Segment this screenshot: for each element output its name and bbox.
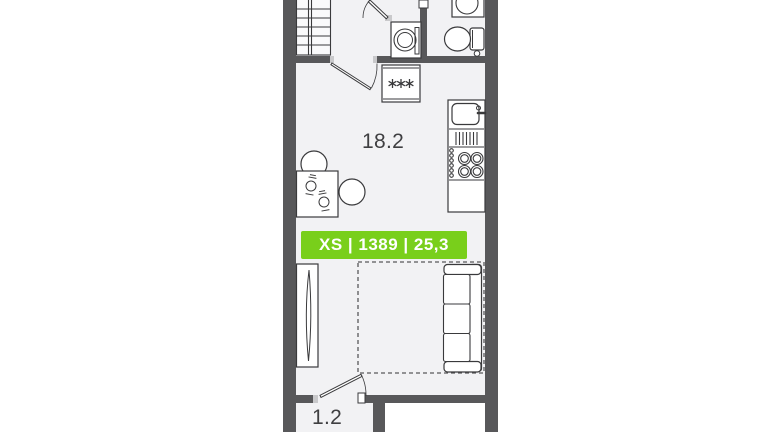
room-area-label: 18.2 [362, 130, 404, 154]
closet-icon [297, 264, 319, 367]
sofa-icon [444, 265, 482, 373]
plan-badge: XS | 1389 | 25,3 [301, 231, 467, 259]
wardrobe-icon [297, 0, 331, 55]
bathroom-sink-icon [452, 0, 484, 17]
fridge-icon [382, 65, 420, 102]
floor-plan-drawing [0, 0, 768, 432]
balcony-area-label: 1.2 [312, 406, 342, 430]
drainboard-icon [456, 132, 477, 145]
washing-machine-icon [391, 22, 421, 58]
floor-plan: 18.2 1.2 XS | 1389 | 25,3 [0, 0, 768, 432]
kitchen-unit-icon [448, 100, 485, 212]
dining-table-icon [297, 171, 339, 217]
chair-icon [339, 179, 365, 205]
